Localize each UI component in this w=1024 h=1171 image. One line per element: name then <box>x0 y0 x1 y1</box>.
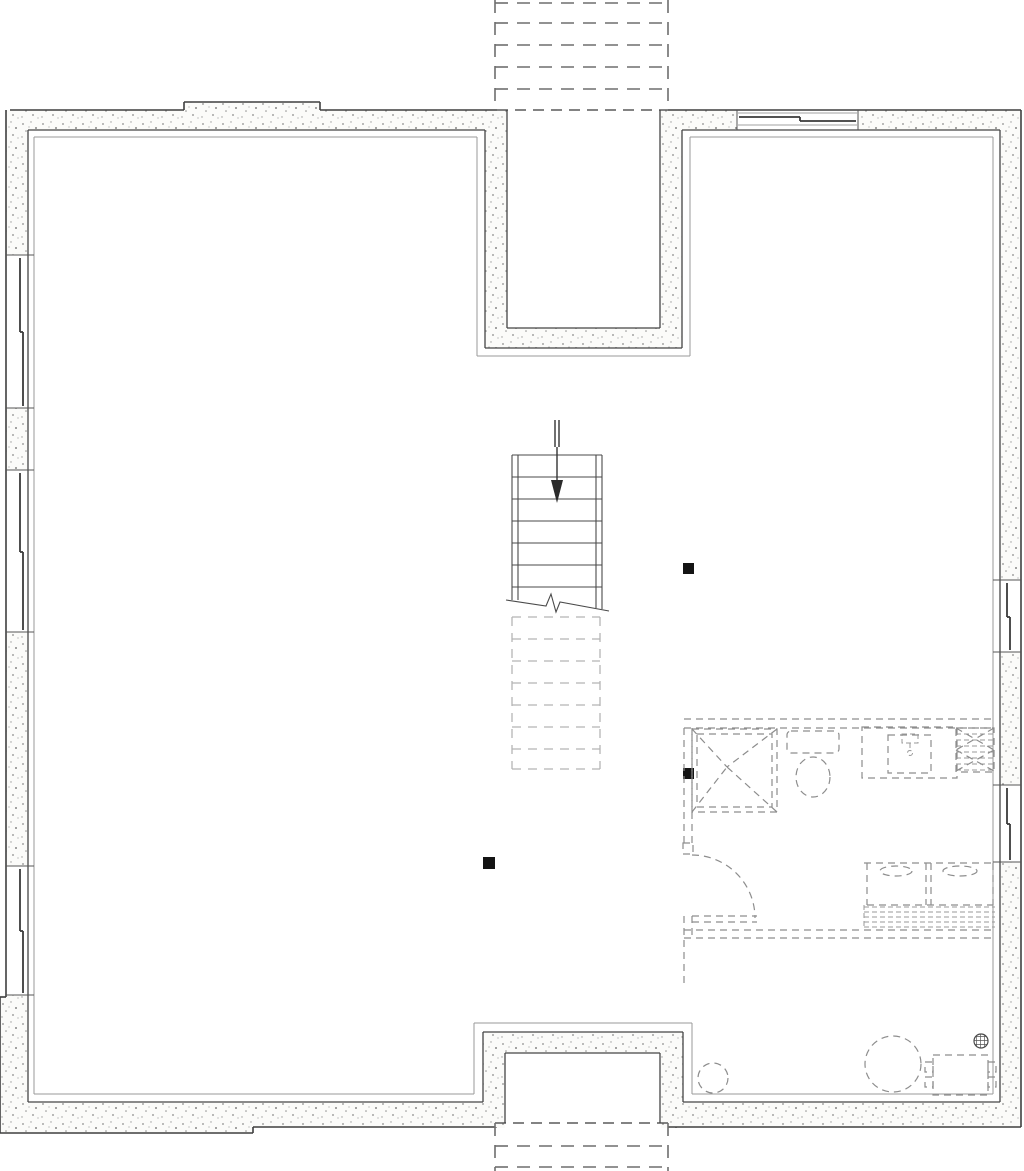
washer-lid <box>880 866 912 876</box>
vanity-counter <box>862 727 957 778</box>
stairwell-bottom-left-wall <box>483 1032 505 1128</box>
stairwell-bottom-north-wall <box>483 1032 683 1053</box>
sump-pit <box>698 1063 728 1093</box>
stairwell-top-end-wall <box>485 328 682 348</box>
wall-right-upper <box>1000 110 1021 580</box>
door-jamb-dashed <box>683 843 693 854</box>
utility-chase <box>956 728 994 772</box>
wall-left-pier-1 <box>6 110 28 255</box>
stairwell-top-right-wall <box>660 110 682 348</box>
stairwell-bottom-right-wall <box>661 1032 683 1128</box>
wall-bottom-left <box>0 1103 253 1133</box>
shower-stall-diagonal <box>727 729 777 767</box>
chair <box>925 1062 933 1072</box>
toilet-bowl <box>796 757 830 797</box>
wall-left-pier-3 <box>6 632 28 866</box>
window-left-3-opening <box>7 867 27 994</box>
wall-left-pier-2 <box>6 408 28 470</box>
water-heater <box>865 1036 921 1092</box>
wall-right-lower <box>1000 862 1021 1127</box>
floor-plan-svg <box>0 0 1024 1171</box>
wall-bottom-mid <box>253 1103 483 1127</box>
steel-post <box>483 857 495 869</box>
shower-stall <box>697 734 772 807</box>
window-left-2-opening <box>7 471 27 631</box>
dryer-lid <box>943 866 977 876</box>
toilet-tank <box>787 731 839 753</box>
shower-stall <box>692 729 777 812</box>
window-top-opening <box>738 111 857 129</box>
steel-post <box>683 563 694 574</box>
chair <box>925 1077 933 1087</box>
stair-break-line <box>506 594 609 612</box>
sink-faucet <box>908 751 913 756</box>
floor-drain <box>974 1034 988 1048</box>
wall-right-mid <box>1000 652 1021 785</box>
wall-bottom-right <box>683 1103 1021 1127</box>
wall-top-notch <box>184 102 320 111</box>
basement-floor-plan <box>0 0 1024 1171</box>
wall-top-right <box>858 110 1021 130</box>
table <box>933 1055 988 1095</box>
shower-stall-diagonal <box>727 767 777 812</box>
window-left-1-opening <box>7 256 27 407</box>
door-swing-arc <box>692 855 755 918</box>
stairwell-top-left-wall <box>485 110 507 348</box>
chair <box>988 1077 996 1087</box>
sink-basin <box>888 735 931 773</box>
wall-top-left <box>6 110 485 130</box>
chair <box>988 1062 996 1072</box>
